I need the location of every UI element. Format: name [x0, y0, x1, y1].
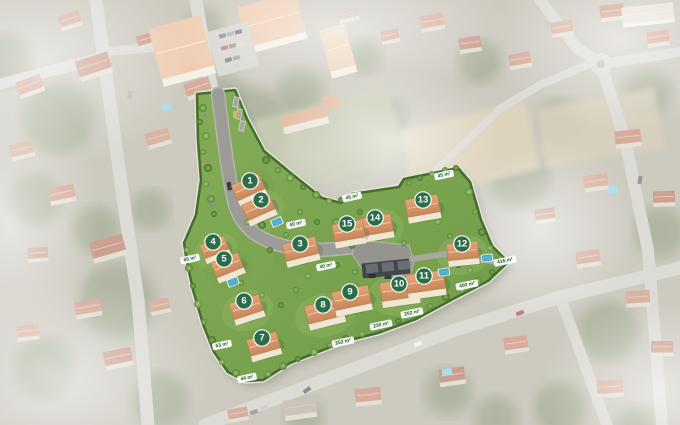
lot-marker-6[interactable]: 6	[236, 293, 252, 309]
tree	[435, 219, 441, 225]
svg-text:14: 14	[370, 213, 381, 224]
lot-marker-10[interactable]: 10	[391, 276, 407, 292]
svg-text:13: 13	[418, 195, 429, 206]
tree	[219, 359, 225, 365]
tree	[465, 188, 473, 196]
tree	[312, 191, 320, 199]
tree	[359, 331, 365, 337]
flower-bed	[461, 229, 464, 232]
car	[369, 274, 376, 278]
tree	[185, 264, 193, 272]
pool	[481, 253, 494, 262]
tree	[401, 240, 407, 246]
svg-text:3: 3	[297, 239, 302, 250]
lot-marker-15[interactable]: 15	[339, 216, 355, 232]
tree	[184, 247, 190, 253]
svg-text:6: 6	[241, 296, 246, 307]
svg-text:15: 15	[342, 219, 353, 230]
tree	[201, 319, 207, 325]
tree	[190, 283, 196, 289]
flower-bed	[211, 205, 214, 208]
svg-text:7: 7	[259, 333, 264, 344]
lot-marker-12[interactable]: 12	[454, 236, 470, 252]
tree	[200, 149, 206, 155]
tree	[232, 369, 240, 377]
lot-marker-7[interactable]: 7	[254, 330, 270, 346]
tree	[267, 247, 273, 253]
lot-marker-14[interactable]: 14	[367, 210, 383, 226]
tree	[279, 362, 287, 370]
lot-marker-8[interactable]: 8	[315, 297, 331, 313]
tree	[314, 219, 320, 225]
tree	[395, 318, 401, 324]
tree	[194, 300, 202, 308]
tree	[197, 119, 203, 125]
tree	[487, 245, 493, 251]
tree	[278, 302, 284, 308]
aerial-site-plan-screenshot: 123456789101112131415 40 m²45 m²45 m²65 …	[0, 0, 680, 425]
tree	[478, 228, 486, 236]
tree	[310, 348, 318, 356]
tree	[295, 356, 301, 362]
tree	[275, 167, 281, 173]
tree	[259, 292, 265, 298]
lot-marker-1[interactable]: 1	[242, 173, 258, 189]
car	[233, 111, 237, 118]
flower-bed	[206, 159, 209, 162]
tree	[429, 171, 435, 177]
svg-text:5: 5	[221, 254, 227, 265]
scene-canvas: 123456789101112131415 40 m²45 m²45 m²65 …	[0, 0, 680, 425]
tree	[427, 303, 433, 309]
svg-text:9: 9	[347, 287, 352, 298]
tree	[326, 198, 332, 204]
lot-marker-2[interactable]: 2	[253, 192, 269, 208]
tree	[357, 209, 363, 215]
tree	[472, 209, 478, 215]
lot-marker-5[interactable]: 5	[216, 251, 232, 267]
tree	[305, 273, 311, 279]
svg-text:1: 1	[247, 176, 253, 187]
tree	[262, 156, 270, 164]
tree	[265, 371, 271, 377]
tree	[467, 267, 473, 273]
svg-text:2: 2	[258, 195, 263, 206]
lot-marker-3[interactable]: 3	[292, 236, 308, 252]
tree	[202, 132, 210, 140]
tree	[447, 233, 453, 239]
svg-text:10: 10	[394, 279, 405, 290]
tree	[283, 232, 289, 238]
svg-text:8: 8	[320, 300, 325, 311]
pool	[438, 267, 451, 277]
tree	[352, 269, 358, 275]
tree	[203, 181, 209, 187]
car	[385, 275, 392, 279]
tree	[489, 269, 495, 275]
tree	[453, 165, 459, 171]
lot-marker-13[interactable]: 13	[415, 192, 431, 208]
tree	[286, 174, 294, 182]
svg-text:11: 11	[419, 271, 430, 282]
lot-marker-9[interactable]: 9	[342, 284, 358, 300]
lot-marker-11[interactable]: 11	[416, 268, 432, 284]
tree	[211, 211, 217, 217]
tree	[417, 175, 423, 181]
svg-text:12: 12	[457, 239, 468, 250]
flower-bed	[204, 114, 207, 117]
tree	[406, 180, 412, 186]
tree	[293, 287, 299, 293]
tree	[297, 209, 303, 215]
tree	[207, 195, 215, 203]
svg-text:4: 4	[210, 237, 216, 248]
tree	[199, 104, 207, 112]
tree	[204, 164, 212, 172]
lot-marker-4[interactable]: 4	[205, 234, 221, 250]
tree	[300, 184, 306, 190]
